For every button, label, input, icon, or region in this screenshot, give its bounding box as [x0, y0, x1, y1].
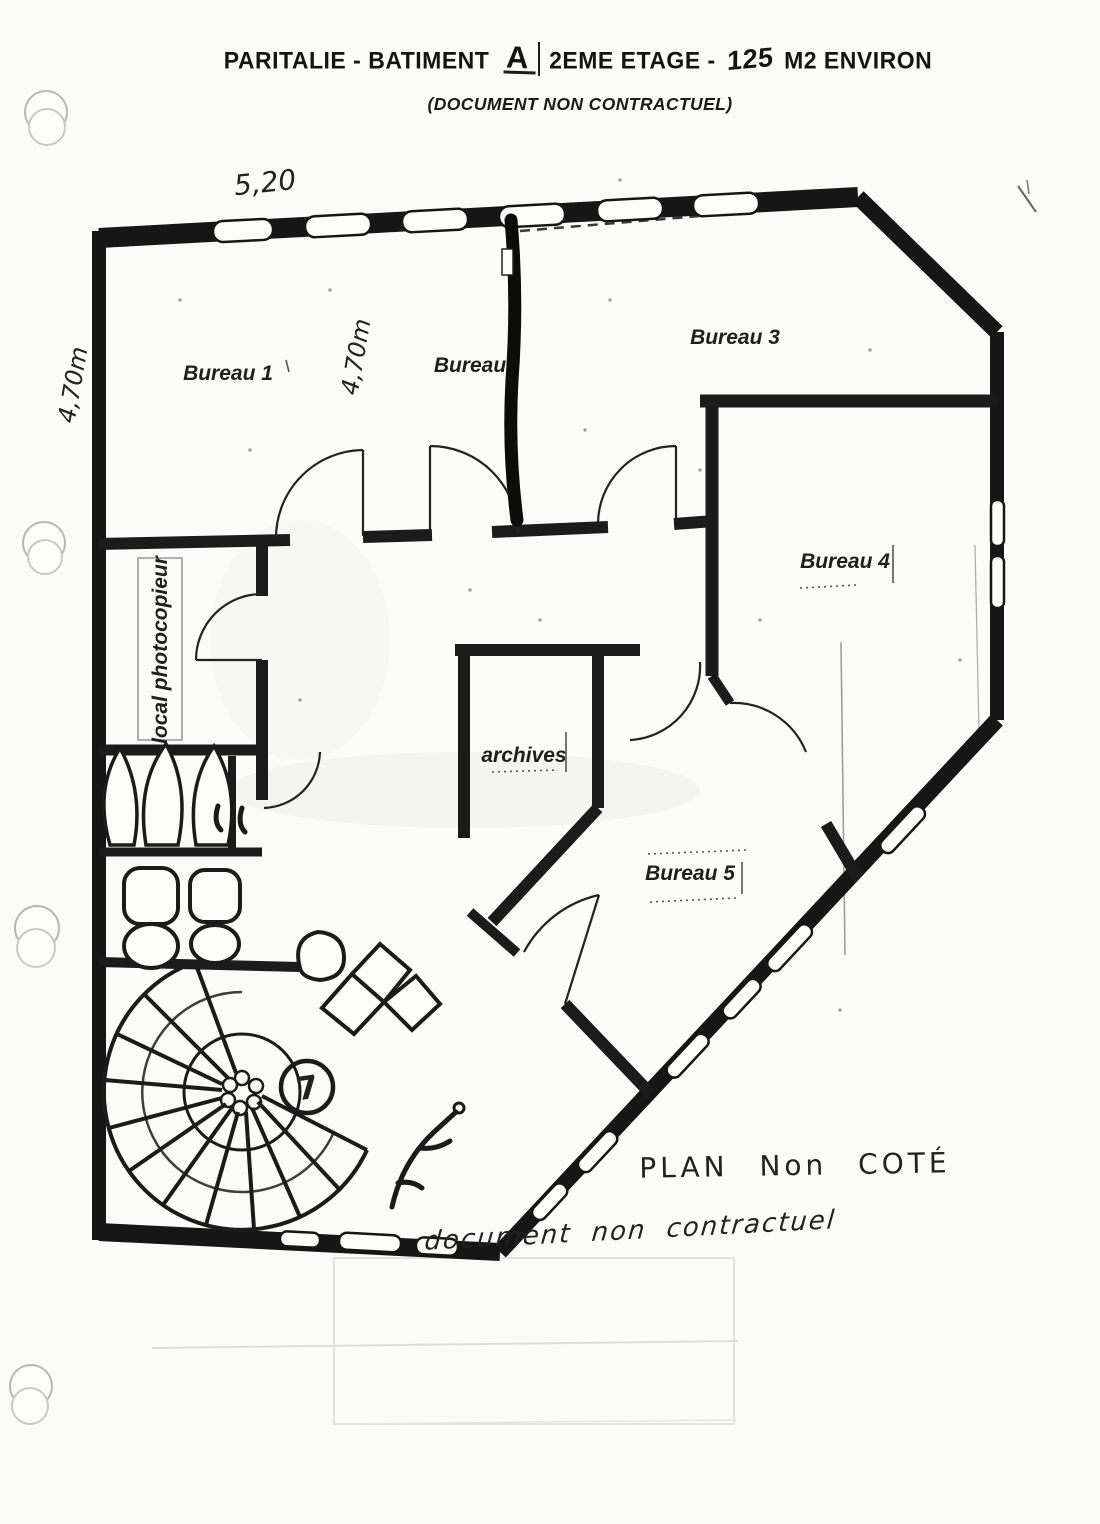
- exterior-walls: [99, 197, 997, 1252]
- scanned-floorplan-page: PARITALIE - BATIMENT A2EME ETAGE - 125 M…: [0, 0, 1100, 1524]
- stair-center-cluster: [221, 1071, 263, 1115]
- hole-punch: [23, 522, 65, 574]
- room-label-bureau-5: Bureau 5: [645, 862, 735, 885]
- room-label-bureau-3: Bureau 3: [690, 326, 780, 349]
- note-plan-non-cote: PLAN Non COTÉ: [639, 1145, 951, 1184]
- spiral-staircase: 7: [104, 932, 464, 1230]
- hole-punch: [10, 1365, 52, 1424]
- plant-doodle: [392, 1103, 464, 1207]
- dimension-middle: 4,70m: [336, 317, 377, 398]
- hole-punches: [10, 91, 67, 1424]
- room-label-bureau-4: Bureau 4: [800, 550, 890, 573]
- floor-plan-svg: 7 Bureau 1 Bureau Bureau 3 Bureau 4 Bure…: [0, 0, 1100, 1524]
- room-label-bureau-2: Bureau: [434, 354, 507, 377]
- marker-latch-mark: [502, 249, 513, 275]
- hole-punch: [15, 906, 59, 967]
- hole-punch: [25, 91, 67, 145]
- stair-landing-shapes: [298, 932, 440, 1034]
- dimension-top: 5,20: [232, 163, 297, 202]
- room-label-bureau-1: Bureau 1: [183, 362, 273, 385]
- note-document-non-contractuel: document non contractuel: [423, 1205, 837, 1257]
- stair-number: 7: [293, 1068, 320, 1109]
- plan-notes: PLAN Non COTÉ document non contractuel: [423, 1145, 951, 1257]
- room-label-archives: archives: [481, 744, 566, 767]
- dimension-left: 4,70m: [53, 345, 94, 426]
- room-label-photocopier: local photocopieur: [149, 554, 172, 744]
